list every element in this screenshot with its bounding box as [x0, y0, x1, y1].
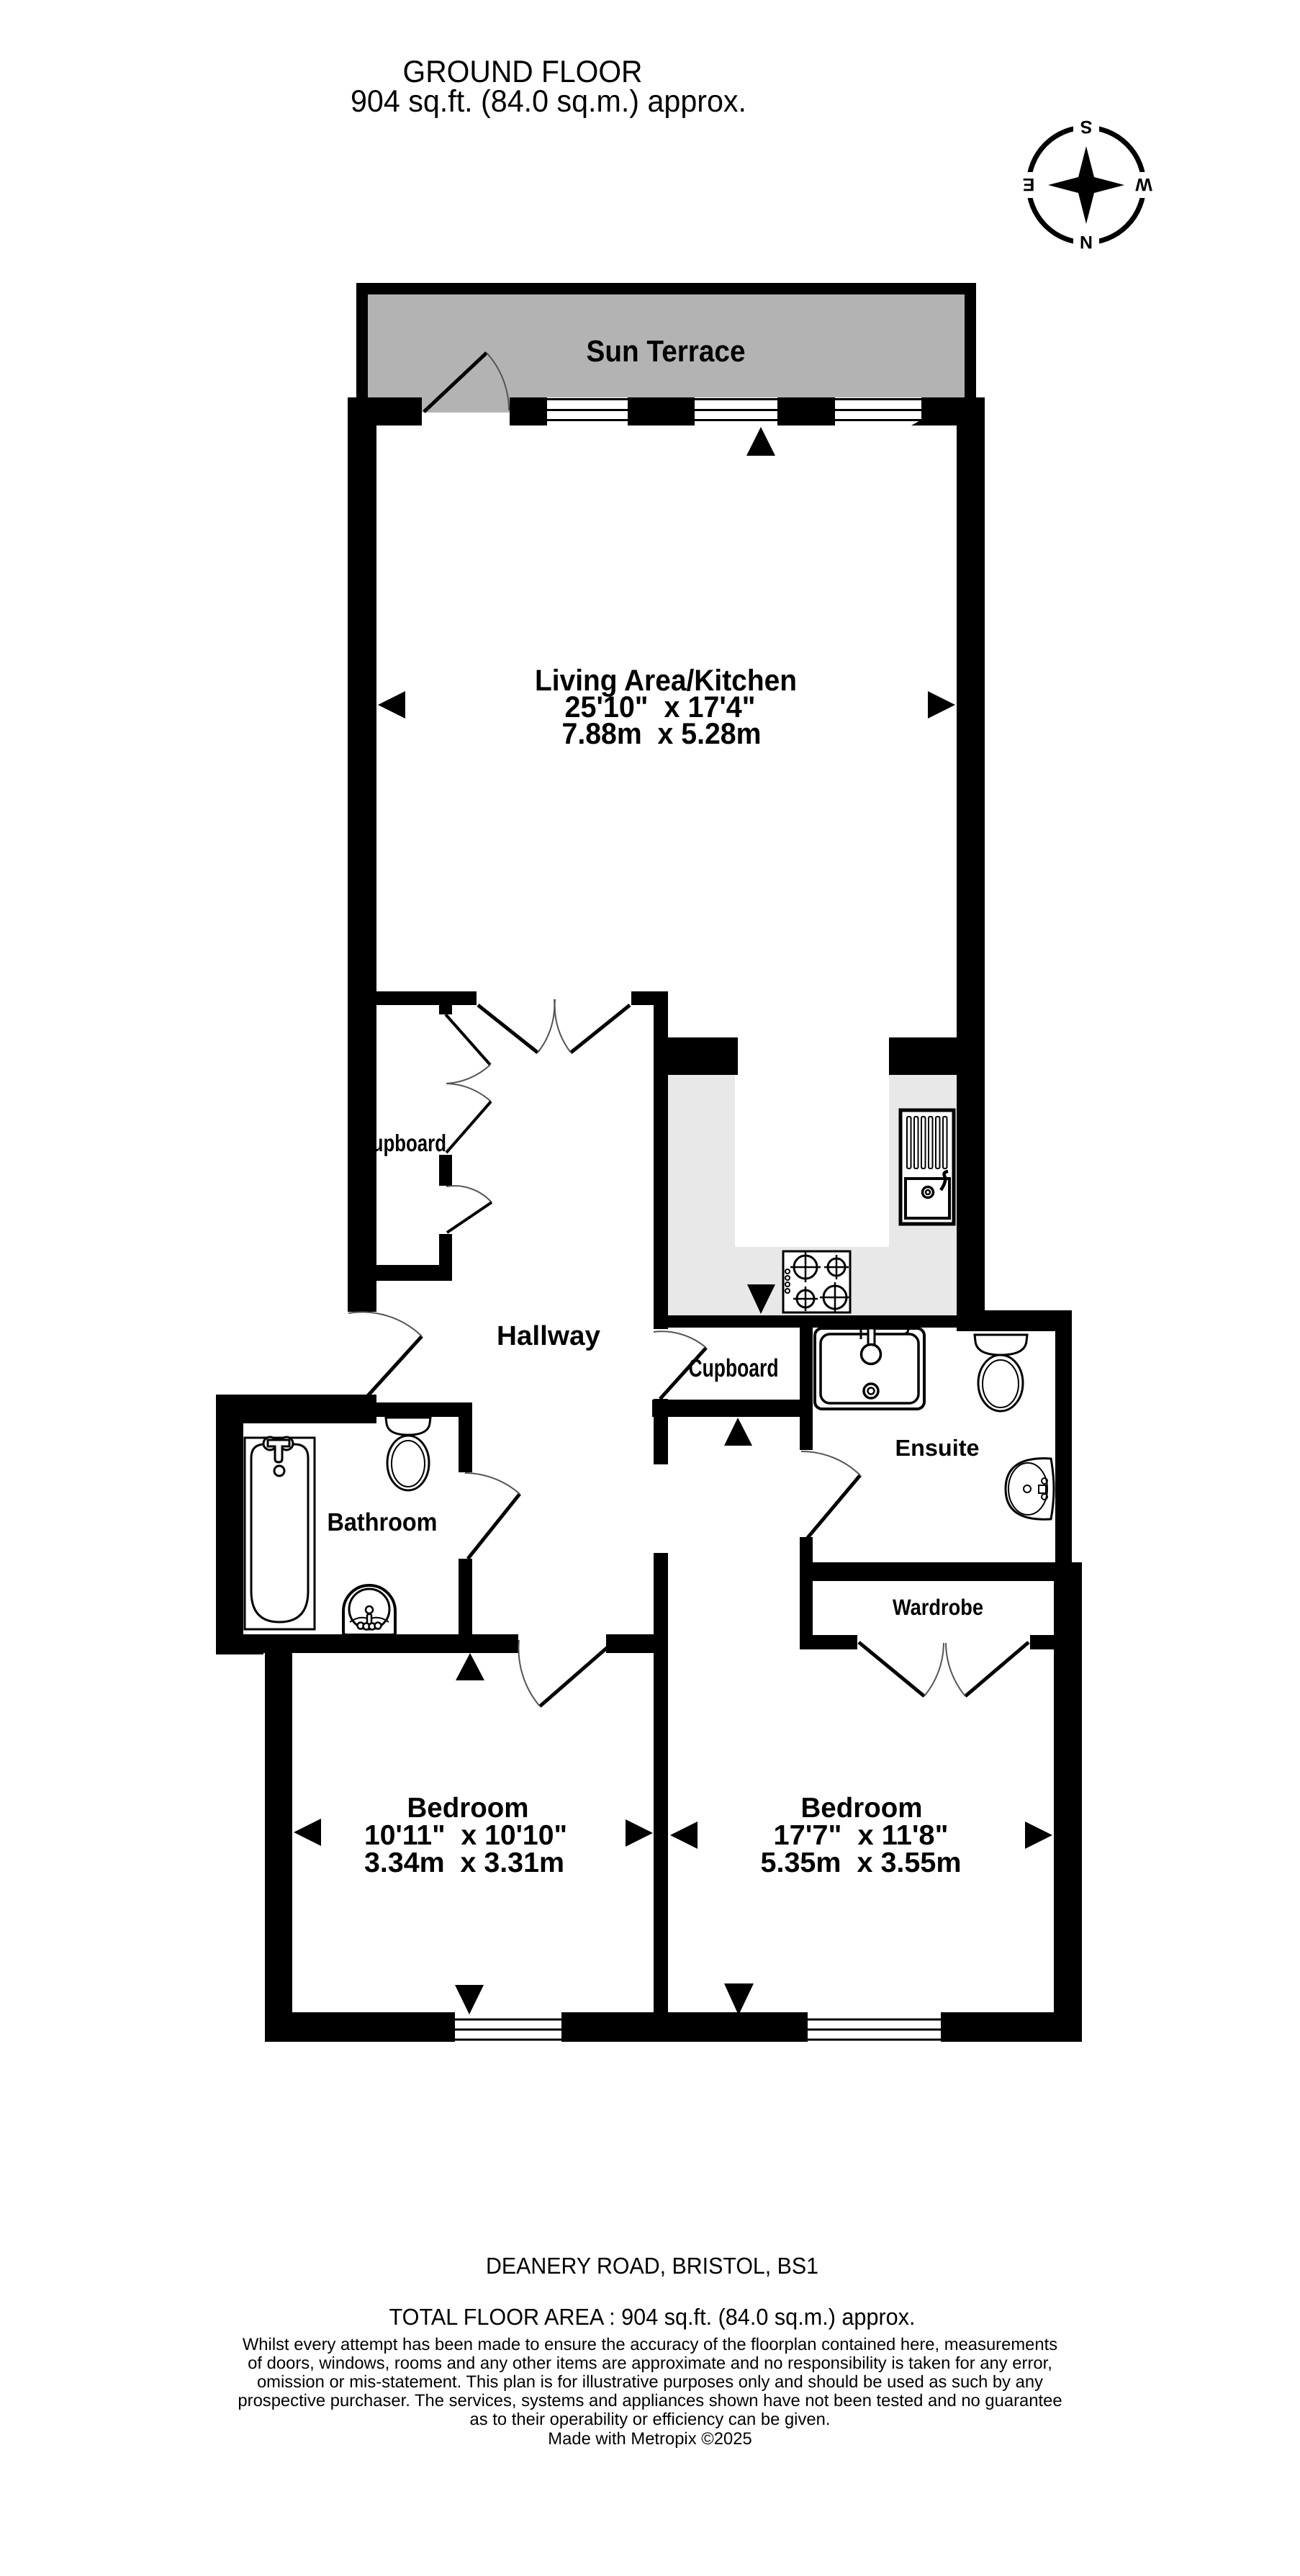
svg-text:of doors, windows, rooms and a: of doors, windows, rooms and any other i…: [248, 2354, 1052, 2373]
svg-text:17'7" x 11'8": 17'7" x 11'8": [774, 1820, 949, 1851]
svg-text:E: E: [1023, 174, 1035, 194]
svg-text:Sun Terrace: Sun Terrace: [587, 334, 746, 368]
svg-text:Bathroom: Bathroom: [328, 1508, 438, 1536]
svg-text:Bedroom: Bedroom: [407, 1793, 529, 1824]
svg-text:Bedroom: Bedroom: [801, 1793, 923, 1824]
svg-text:Made with Metropix ©2025: Made with Metropix ©2025: [548, 2429, 751, 2449]
svg-text:10'11" x 10'10": 10'11" x 10'10": [364, 1820, 567, 1851]
svg-text:TOTAL FLOOR AREA : 904 sq.ft.: TOTAL FLOOR AREA : 904 sq.ft. (84.0 sq.m…: [389, 2304, 916, 2330]
svg-text:Cupboard: Cupboard: [689, 1354, 779, 1382]
svg-text:3.34m x 3.31m: 3.34m x 3.31m: [364, 1847, 564, 1878]
svg-text:omission or mis-statement. Thi: omission or mis-statement. This plan is …: [257, 2372, 1043, 2392]
svg-text:Whilst every attempt has been: Whilst every attempt has been made to en…: [243, 2335, 1057, 2354]
svg-text:5.35m x 3.55m: 5.35m x 3.55m: [761, 1847, 962, 1878]
svg-text:prospective purchaser. The ser: prospective purchaser. The services, sys…: [238, 2391, 1062, 2410]
svg-text:as to their operability or eff: as to their operability or efficiency ca…: [470, 2410, 831, 2429]
svg-text:N: N: [1080, 232, 1093, 252]
svg-text:W: W: [1135, 174, 1152, 194]
svg-text:904 sq.ft. (84.0 sq.m.) approx: 904 sq.ft. (84.0 sq.m.) approx.: [351, 84, 746, 119]
svg-text:Ensuite: Ensuite: [895, 1435, 980, 1461]
svg-text:S: S: [1080, 117, 1093, 137]
svg-text:DEANERY ROAD, BRISTOL, BS1: DEANERY ROAD, BRISTOL, BS1: [486, 2253, 818, 2279]
svg-text:Cupboard: Cupboard: [358, 1130, 446, 1156]
svg-text:Hallway: Hallway: [497, 1321, 600, 1351]
svg-text:7.88m x 5.28m: 7.88m x 5.28m: [562, 716, 762, 750]
svg-text:Wardrobe: Wardrobe: [893, 1595, 983, 1620]
